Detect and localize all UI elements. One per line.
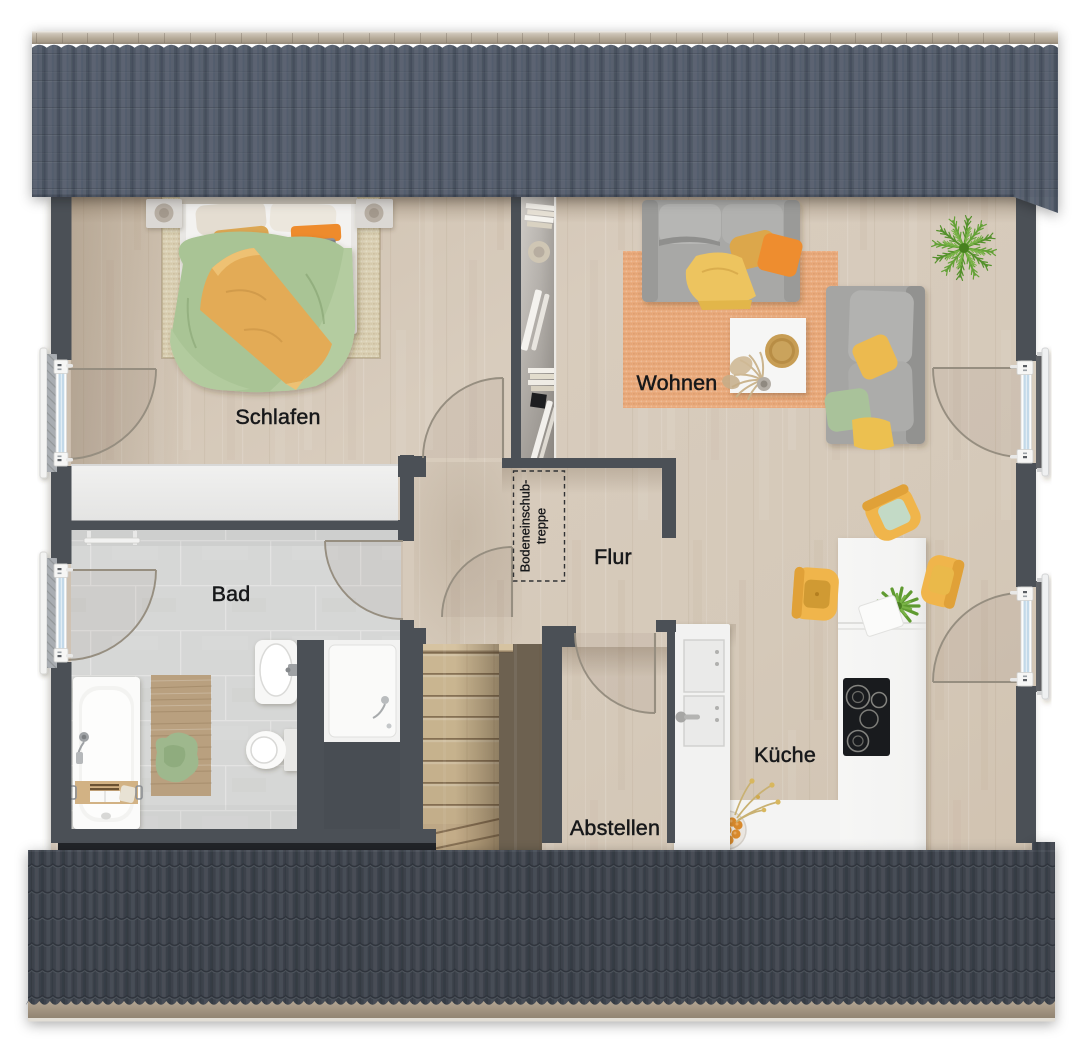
svg-text:Bodeneinschub-: Bodeneinschub- xyxy=(518,480,533,573)
svg-text:Wohnen: Wohnen xyxy=(637,371,718,395)
svg-text:Flur: Flur xyxy=(594,545,632,569)
svg-text:treppe: treppe xyxy=(534,508,549,544)
svg-text:Küche: Küche xyxy=(754,743,816,767)
svg-text:Abstellen: Abstellen xyxy=(570,816,660,840)
svg-text:Bad: Bad xyxy=(212,582,251,606)
svg-text:Schlafen: Schlafen xyxy=(235,405,320,429)
